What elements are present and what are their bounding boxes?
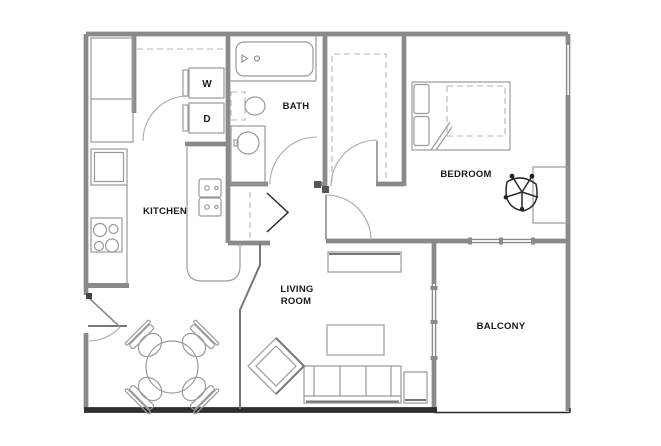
living-room-label-line2: ROOM xyxy=(281,296,312,307)
bath-label: BATH xyxy=(283,101,310,112)
washer-label: W xyxy=(202,79,212,90)
kitchen-label: KITCHEN xyxy=(143,206,187,217)
counter-end-cap xyxy=(88,283,129,288)
balcony-label: BALCONY xyxy=(477,321,526,332)
floor-plan-page: KITCHEN BATH BEDROOM LIVING ROOM BALCONY… xyxy=(0,0,661,446)
living-room-label-line1: LIVING xyxy=(280,284,313,295)
dryer-label: D xyxy=(203,114,210,125)
bedroom-label: BEDROOM xyxy=(440,169,491,180)
floor-plan: KITCHEN BATH BEDROOM LIVING ROOM BALCONY… xyxy=(0,0,661,446)
